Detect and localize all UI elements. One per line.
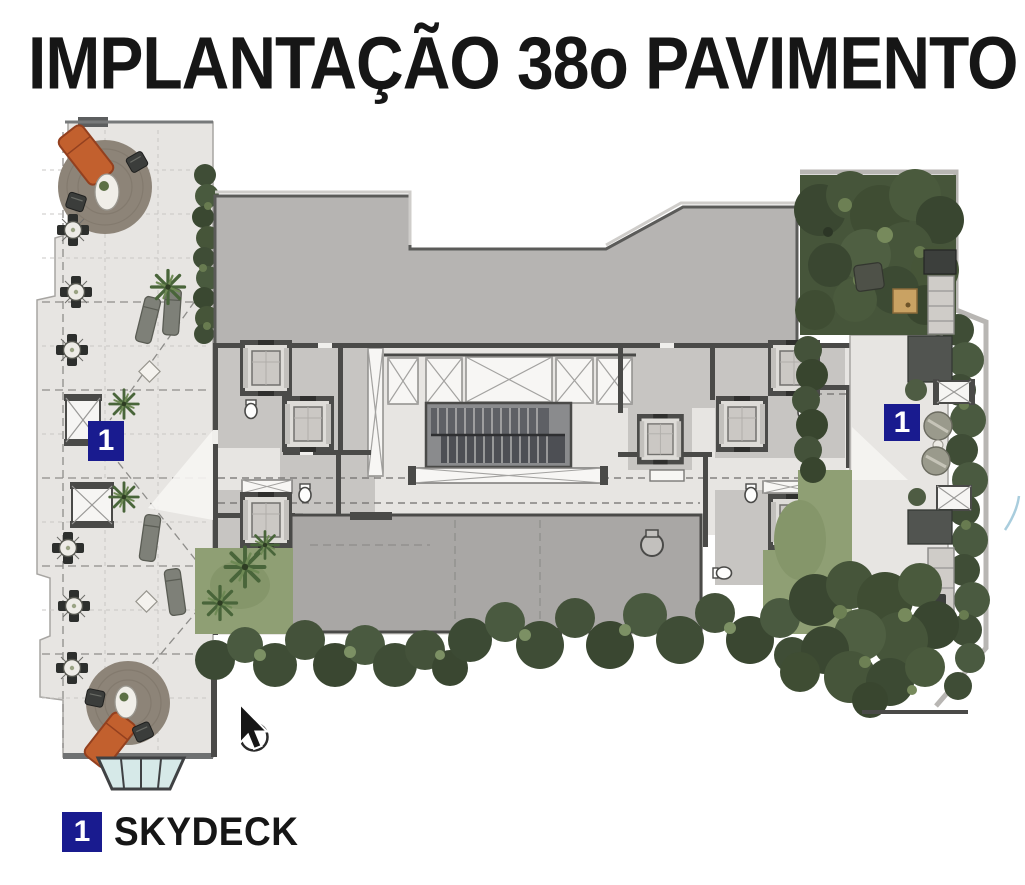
southeast-trees <box>780 561 959 718</box>
legend-marker-number: 1 <box>74 815 91 849</box>
legend-marker-swatch: 1 <box>62 812 102 852</box>
watermark-stroke <box>1005 496 1019 530</box>
roof-slab <box>215 192 797 345</box>
floor-plan-image <box>0 0 1025 885</box>
glass-canopy <box>98 758 184 789</box>
cursor-icon <box>240 704 268 751</box>
page: IMPLANTAÇÃO 38o PAVIMENTO <box>0 0 1025 885</box>
legend-label: SKYDECK <box>114 809 298 854</box>
vent-box <box>933 379 975 405</box>
marker-skydeck-east[interactable]: 1 <box>884 404 920 441</box>
west-terrace <box>37 117 217 770</box>
marker-skydeck-west[interactable]: 1 <box>88 421 124 461</box>
vent-box <box>937 486 971 510</box>
marker-label: 1 <box>98 426 115 456</box>
marker-label: 1 <box>894 408 911 438</box>
legend: 1 SKYDECK <box>62 811 298 853</box>
vent-box <box>70 482 114 528</box>
vent-shaft <box>408 466 608 485</box>
stairs <box>426 403 571 467</box>
